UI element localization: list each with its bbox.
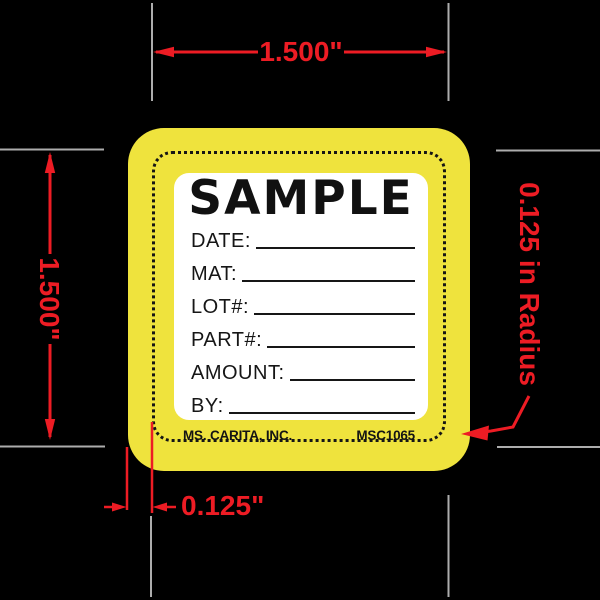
leader-arrowhead-icon xyxy=(461,426,489,441)
width-dimension-label: 1.500" xyxy=(259,36,342,68)
margin-dimension-label: 0.125" xyxy=(181,490,264,522)
arrowhead-left-icon xyxy=(153,503,168,512)
margin-dimension xyxy=(104,422,176,513)
height-dimension-label: 1.500" xyxy=(33,257,65,340)
arrowhead-up-icon xyxy=(45,152,55,173)
diagram-canvas: SAMPLE DATE: MAT: LOT#: PART#: xyxy=(0,0,600,600)
dimension-graphics xyxy=(0,0,600,600)
arrowhead-right-icon xyxy=(426,47,447,57)
radius-dimension-label: 0.125 in Radius xyxy=(513,182,545,386)
arrowhead-down-icon xyxy=(45,419,55,440)
arrowhead-left-icon xyxy=(153,47,174,57)
arrowhead-right-icon xyxy=(112,503,127,512)
extension-lines xyxy=(0,3,600,597)
radius-leader xyxy=(461,396,529,441)
